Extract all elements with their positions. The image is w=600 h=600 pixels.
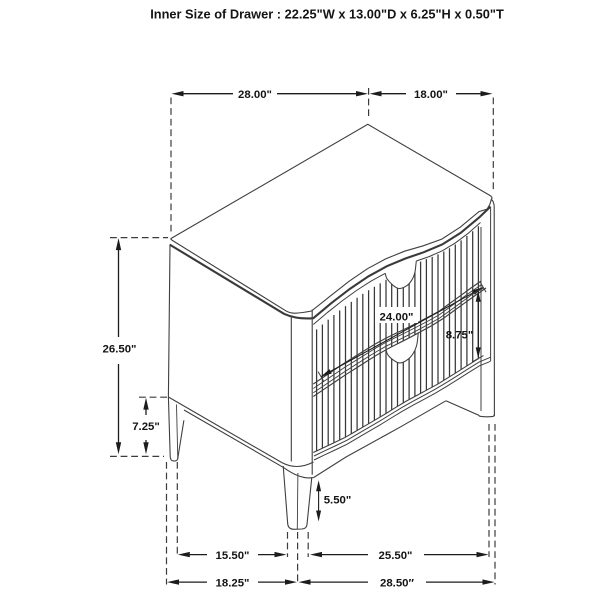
svg-text:5.50": 5.50" [324, 495, 352, 507]
svg-text:24.00": 24.00" [380, 312, 414, 324]
svg-text:7.25": 7.25" [132, 421, 160, 433]
svg-text:28.00": 28.00" [238, 89, 272, 101]
svg-text:28.50″: 28.50″ [380, 578, 415, 590]
svg-text:18.00": 18.00" [414, 89, 448, 101]
svg-text:Inner Size of Drawer : 22.25"W: Inner Size of Drawer : 22.25"W x 13.00"D… [150, 7, 504, 22]
svg-text:15.50": 15.50" [216, 550, 250, 562]
svg-text:25.50": 25.50" [379, 550, 413, 562]
svg-text:8.75": 8.75" [446, 330, 474, 342]
svg-text:18.25": 18.25" [216, 578, 250, 590]
svg-text:26.50": 26.50" [103, 344, 137, 356]
